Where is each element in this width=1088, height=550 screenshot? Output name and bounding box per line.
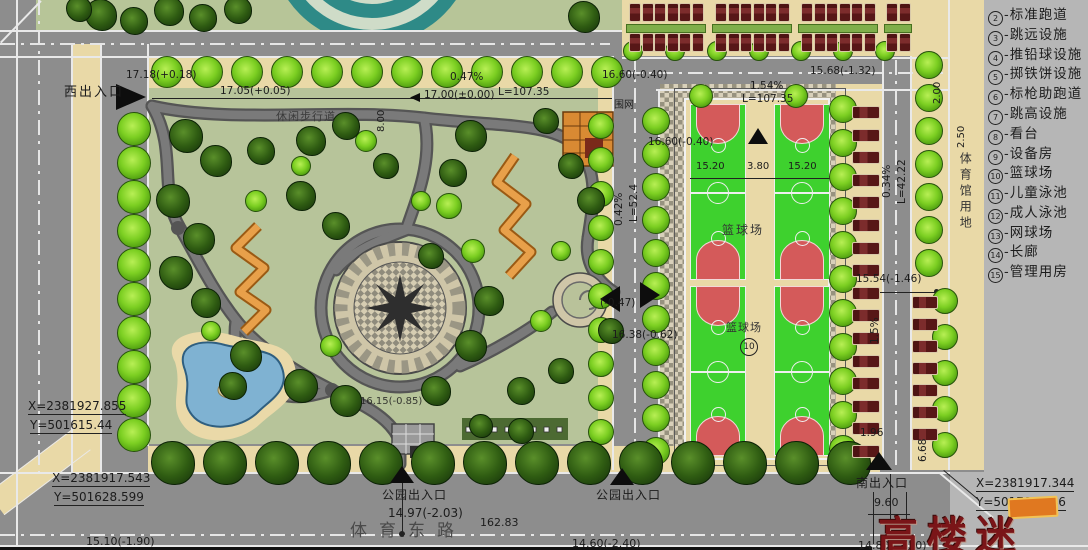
dim-label: 162.83: [480, 517, 519, 529]
basketball-ref-badge: 10: [740, 338, 758, 356]
dim-label: L=42.22: [897, 159, 909, 204]
dim-label: 17.05(+0.05): [220, 86, 290, 98]
car-icon: [692, 33, 704, 52]
car-icon: [814, 33, 826, 52]
car-icon: [852, 106, 880, 119]
legend-item: 2-标准跑道: [988, 3, 1068, 22]
car-icon: [912, 296, 938, 309]
car-icon: [814, 3, 826, 22]
tree-icon: [577, 187, 605, 215]
tree-icon: [391, 56, 423, 88]
tree-icon: [588, 249, 614, 275]
car-icon: [753, 33, 765, 52]
tree-icon: [463, 441, 507, 485]
car-icon: [864, 3, 876, 22]
car-icon: [852, 287, 880, 300]
legend-item: 6-标枪助跑道: [988, 82, 1082, 101]
tree-icon: [117, 418, 151, 452]
tree-icon: [296, 126, 326, 156]
tree-icon: [915, 183, 943, 211]
dim-label: 0.34%: [882, 165, 894, 198]
basketball-label: 篮球场: [726, 322, 762, 334]
tree-icon: [642, 173, 670, 201]
tree-icon: [436, 193, 462, 219]
car-icon: [642, 3, 654, 22]
legend-item: 4-推铅球设施: [988, 43, 1082, 62]
tree-icon: [311, 56, 343, 88]
dim-label: L=52.4: [629, 184, 641, 222]
tree-icon: [231, 56, 263, 88]
car-icon: [728, 33, 740, 52]
car-icon: [667, 33, 679, 52]
tree-icon: [117, 180, 151, 214]
tree-icon: [530, 310, 552, 332]
tree-icon: [474, 286, 504, 316]
car-icon: [912, 406, 938, 419]
tree-icon: [154, 0, 184, 26]
tree-icon: [455, 330, 487, 362]
basketball-label: 篮球场: [722, 224, 764, 237]
legend-item: 12-成人泳池: [988, 201, 1068, 220]
car-icon: [852, 174, 880, 187]
car-icon: [852, 151, 880, 164]
tree-icon: [120, 7, 148, 35]
tree-icon: [117, 282, 151, 316]
car-icon: [912, 318, 938, 331]
car-icon: [692, 3, 704, 22]
tree-icon: [588, 113, 614, 139]
tree-icon: [411, 441, 455, 485]
tree-icon: [915, 150, 943, 178]
car-icon: [715, 33, 727, 52]
tree-icon: [411, 191, 431, 211]
dim-label: 16.38(-0.62): [612, 330, 677, 342]
tree-icon: [642, 107, 670, 135]
car-icon: [753, 3, 765, 22]
tree-icon: [284, 369, 318, 403]
car-icon: [839, 3, 851, 22]
tree-icon: [511, 56, 543, 88]
tree-icon: [551, 241, 571, 261]
car-icon: [715, 3, 727, 22]
tree-icon: [322, 212, 350, 240]
tree-icon: [117, 112, 151, 146]
dim-label: 16.15(-0.85): [360, 396, 422, 407]
tree-icon: [373, 153, 399, 179]
tree-icon: [159, 256, 193, 290]
tree-icon: [189, 4, 217, 32]
legend-item: 10-篮球场: [988, 161, 1053, 180]
tree-icon: [775, 441, 819, 485]
watermark: 高楼迷: [878, 504, 1025, 550]
legend-item: 8-看台: [988, 122, 1039, 141]
tree-icon: [469, 414, 493, 438]
car-icon: [629, 33, 641, 52]
car-icon: [852, 129, 880, 142]
dim-label: 17.00(±0.00): [424, 90, 494, 102]
tree-icon: [551, 56, 583, 88]
site-plan: 西出入口 17.18(+0.18) 17.05(+0.05) 17.00(±0.…: [0, 0, 1088, 550]
car-icon: [654, 3, 666, 22]
car-icon: [899, 33, 911, 52]
hedge: [712, 24, 792, 33]
car-icon: [886, 33, 898, 52]
tree-icon: [418, 243, 444, 269]
car-icon: [839, 33, 851, 52]
tree-icon: [66, 0, 92, 22]
hedge: [798, 24, 878, 33]
tree-icon: [230, 340, 262, 372]
dim-label: 17.18(+0.18): [126, 70, 196, 82]
tree-icon: [723, 441, 767, 485]
tree-icon: [320, 335, 342, 357]
car-icon: [826, 3, 838, 22]
tree-icon: [689, 84, 713, 108]
car-icon: [679, 3, 691, 22]
legend-item: 15-管理用房: [988, 260, 1068, 279]
road-name-label: 体育东路: [350, 522, 466, 541]
car-icon: [740, 3, 752, 22]
tree-icon: [169, 119, 203, 153]
dim-label: 6.68: [918, 439, 930, 462]
car-icon: [852, 400, 880, 413]
car-icon: [679, 33, 691, 52]
car-icon: [899, 3, 911, 22]
legend-item: 14-长廊: [988, 240, 1039, 259]
car-icon: [852, 242, 880, 255]
tree-icon: [200, 145, 232, 177]
dim-label: 1.54%: [750, 81, 783, 93]
tree-icon: [224, 0, 252, 24]
tree-icon: [915, 117, 943, 145]
tree-icon: [588, 351, 614, 377]
dim-label: 15.54(-1.46): [856, 274, 921, 286]
car-icon: [912, 340, 938, 353]
tree-icon: [156, 184, 190, 218]
dim-label: 1.5%: [870, 317, 882, 344]
car-icon: [778, 33, 790, 52]
dim-label: 0.42%: [614, 193, 626, 226]
car-icon: [912, 384, 938, 397]
dim-label: 14.60(-2.40): [572, 538, 641, 550]
tree-icon: [219, 372, 247, 400]
fence-label: 围网: [614, 100, 634, 111]
stadium-land-label: 体育馆用地: [958, 152, 971, 232]
south-entrance-label: 南出入口: [856, 477, 908, 490]
car-icon: [852, 445, 880, 458]
dim-label: 15.68(-1.32): [810, 66, 875, 78]
legend-item: 3-跳远设施: [988, 23, 1068, 42]
tree-icon: [507, 377, 535, 405]
tree-icon: [567, 441, 611, 485]
car-icon: [912, 362, 938, 375]
car-icon: [667, 3, 679, 22]
car-icon: [778, 3, 790, 22]
walkway-label: 休闲步行道: [276, 111, 336, 123]
dim-label: 0.47%: [450, 72, 483, 84]
car-icon: [852, 219, 880, 232]
tree-icon: [286, 181, 316, 211]
tree-icon: [271, 56, 303, 88]
dim-label: 3.80: [747, 161, 769, 172]
dim-label: 15.10(-1.90): [86, 536, 155, 548]
tree-icon: [642, 371, 670, 399]
legend-item: 7-跳高设施: [988, 102, 1068, 121]
car-icon: [886, 3, 898, 22]
tree-icon: [330, 385, 362, 417]
survey-coordinate: X=2381917.344: [976, 477, 1074, 492]
hedge: [626, 24, 706, 33]
dim-label: 16.60(-0.40): [602, 70, 667, 82]
dim-label: 2.50: [956, 126, 967, 148]
dim-label: 15.20: [788, 161, 817, 172]
dim-label: 2.00: [932, 82, 943, 104]
tree-icon: [455, 120, 487, 152]
tree-icon: [642, 404, 670, 432]
tree-icon: [307, 441, 351, 485]
dim-label: 15.20: [696, 161, 725, 172]
car-icon: [801, 3, 813, 22]
tree-icon: [461, 239, 485, 263]
tree-icon: [117, 146, 151, 180]
tree-icon: [642, 338, 670, 366]
tree-icon: [255, 441, 299, 485]
tree-icon: [642, 206, 670, 234]
car-icon: [852, 196, 880, 209]
legend-item: 13-网球场: [988, 221, 1053, 240]
car-icon: [654, 33, 666, 52]
tree-icon: [588, 385, 614, 411]
tree-icon: [439, 159, 467, 187]
legend-number-badge: 15: [988, 268, 1003, 283]
tree-icon: [117, 350, 151, 384]
tree-icon: [191, 288, 221, 318]
car-icon: [864, 33, 876, 52]
survey-coordinate: Y=501615.44: [30, 419, 112, 434]
tree-icon: [117, 214, 151, 248]
tree-icon: [568, 1, 600, 33]
car-icon: [765, 3, 777, 22]
car-icon: [728, 3, 740, 22]
tree-icon: [642, 239, 670, 267]
tree-icon: [515, 441, 559, 485]
tree-icon: [558, 153, 584, 179]
survey-coordinate: X=2381927.855: [28, 400, 126, 415]
tree-icon: [117, 316, 151, 350]
tree-icon: [183, 223, 215, 255]
dim-label: 14.97(-2.03): [388, 507, 463, 520]
tree-icon: [351, 56, 383, 88]
dim-label: 16.60(-0.40): [648, 137, 713, 149]
tree-icon: [247, 137, 275, 165]
legend-item: 5-掷铁饼设施: [988, 62, 1082, 81]
tree-icon: [421, 376, 451, 406]
tree-icon: [117, 248, 151, 282]
tree-icon: [291, 156, 311, 176]
tree-icon: [332, 112, 360, 140]
car-icon: [826, 33, 838, 52]
car-icon: [629, 3, 641, 22]
park-entrance-label: 公园出入口: [382, 489, 447, 502]
tree-icon: [151, 441, 195, 485]
west-entrance-label: 西出入口: [64, 86, 124, 100]
tree-icon: [915, 51, 943, 79]
legend-item: 9-设备房: [988, 142, 1053, 161]
car-icon: [642, 33, 654, 52]
survey-coordinate: Y=501628.599: [54, 491, 144, 506]
tree-icon: [508, 418, 534, 444]
tree-icon: [671, 441, 715, 485]
car-icon: [852, 355, 880, 368]
tree-icon: [203, 441, 247, 485]
tree-icon: [915, 216, 943, 244]
legend-item: 11-儿童泳池: [988, 181, 1068, 200]
car-icon: [765, 33, 777, 52]
hedge: [884, 24, 912, 33]
tree-icon: [548, 358, 574, 384]
dim-label: L=107.35: [742, 94, 793, 106]
dim-label: (-0.47): [600, 298, 635, 310]
tree-icon: [533, 108, 559, 134]
tree-icon: [245, 190, 267, 212]
dim-label: 8.00: [376, 110, 387, 132]
car-icon: [851, 3, 863, 22]
tree-icon: [588, 147, 614, 173]
park-entrance-label: 公园出入口: [596, 489, 661, 502]
car-icon: [801, 33, 813, 52]
survey-coordinate: X=2381917.543: [52, 472, 150, 487]
tree-icon: [588, 215, 614, 241]
car-icon: [851, 33, 863, 52]
tree-icon: [201, 321, 221, 341]
dim-label: L=107.35: [498, 87, 549, 99]
dim-label: 1.96: [860, 428, 883, 440]
car-icon: [740, 33, 752, 52]
car-icon: [852, 377, 880, 390]
